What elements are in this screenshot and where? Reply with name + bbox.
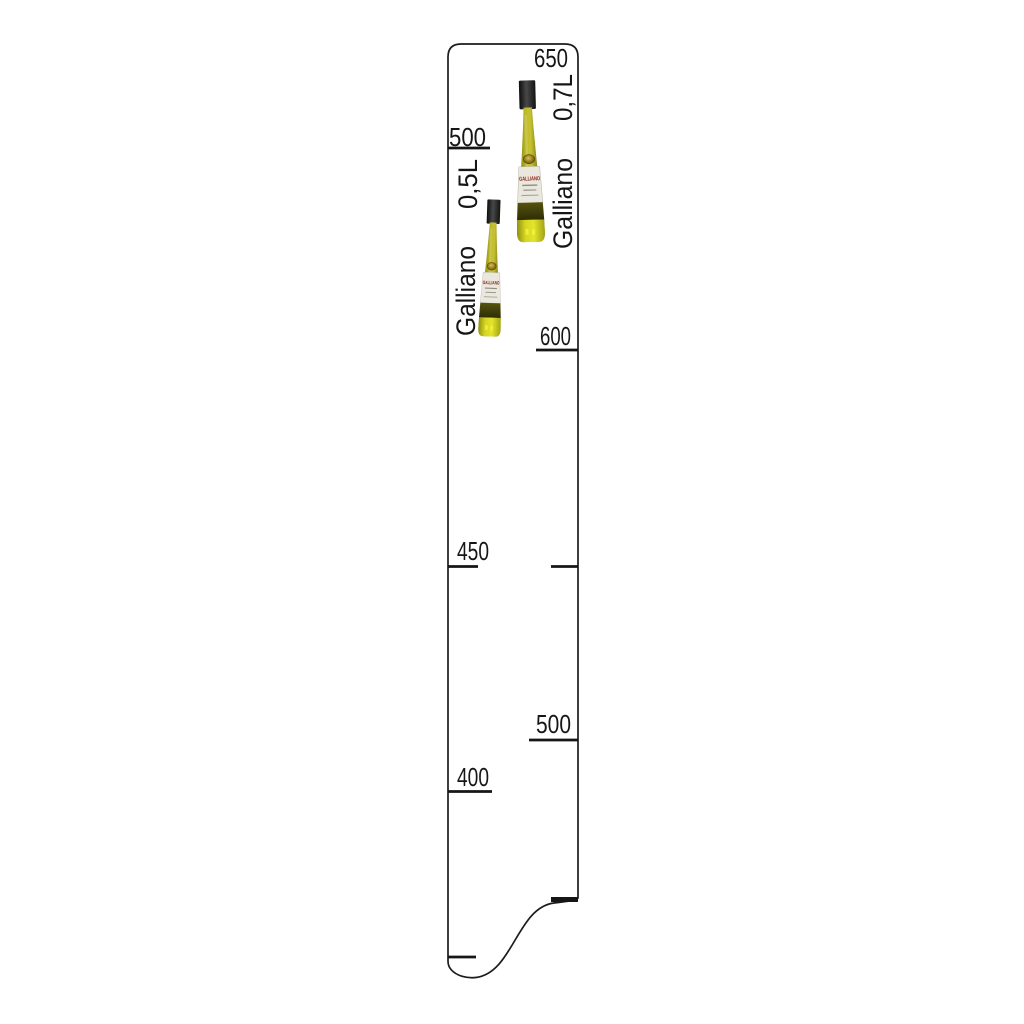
page-background: GALLIANO 500 450 xyxy=(0,0,1024,1024)
mark-label-right-650: 650 xyxy=(534,43,568,73)
right-column-brand-label: Galliano xyxy=(548,158,578,249)
mark-label-left-500: 500 xyxy=(449,122,486,152)
mark-label-left-400: 400 xyxy=(457,762,489,792)
mark-label-left-450: 450 xyxy=(457,536,489,566)
left-column-brand-label: Galliano xyxy=(451,246,481,336)
mark-label-right-500: 500 xyxy=(536,709,571,739)
mark-label-right-600: 600 xyxy=(540,321,571,351)
left-column-size-label: 0,5L xyxy=(453,159,483,209)
ruler-diagram: GALLIANO 500 450 xyxy=(0,0,1024,1024)
right-column-size-label: 0,7L xyxy=(548,74,578,121)
